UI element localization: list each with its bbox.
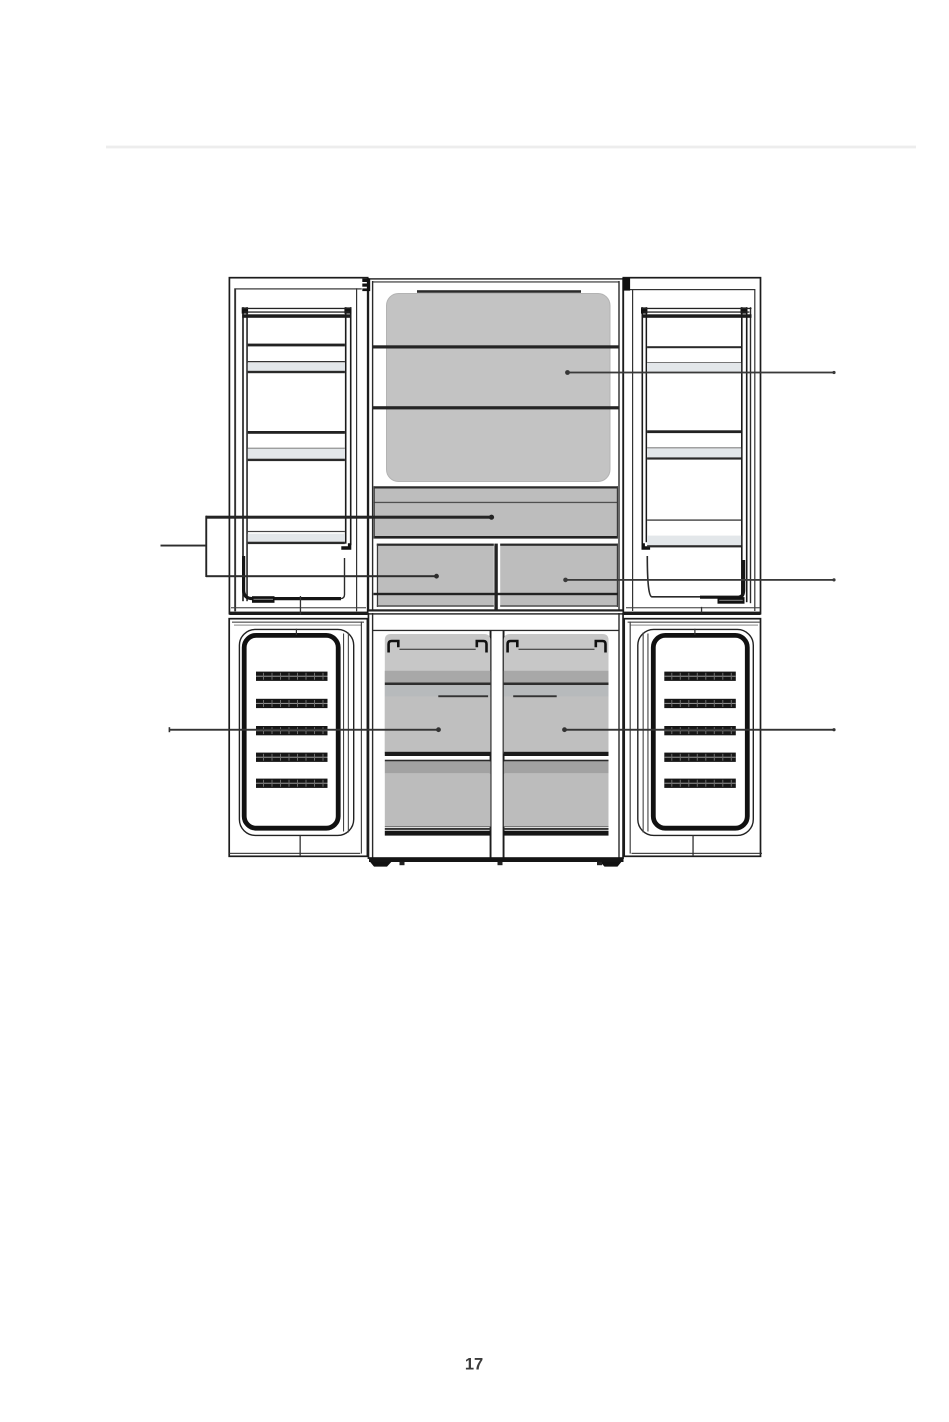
svg-text:17: 17 [465, 1356, 483, 1374]
